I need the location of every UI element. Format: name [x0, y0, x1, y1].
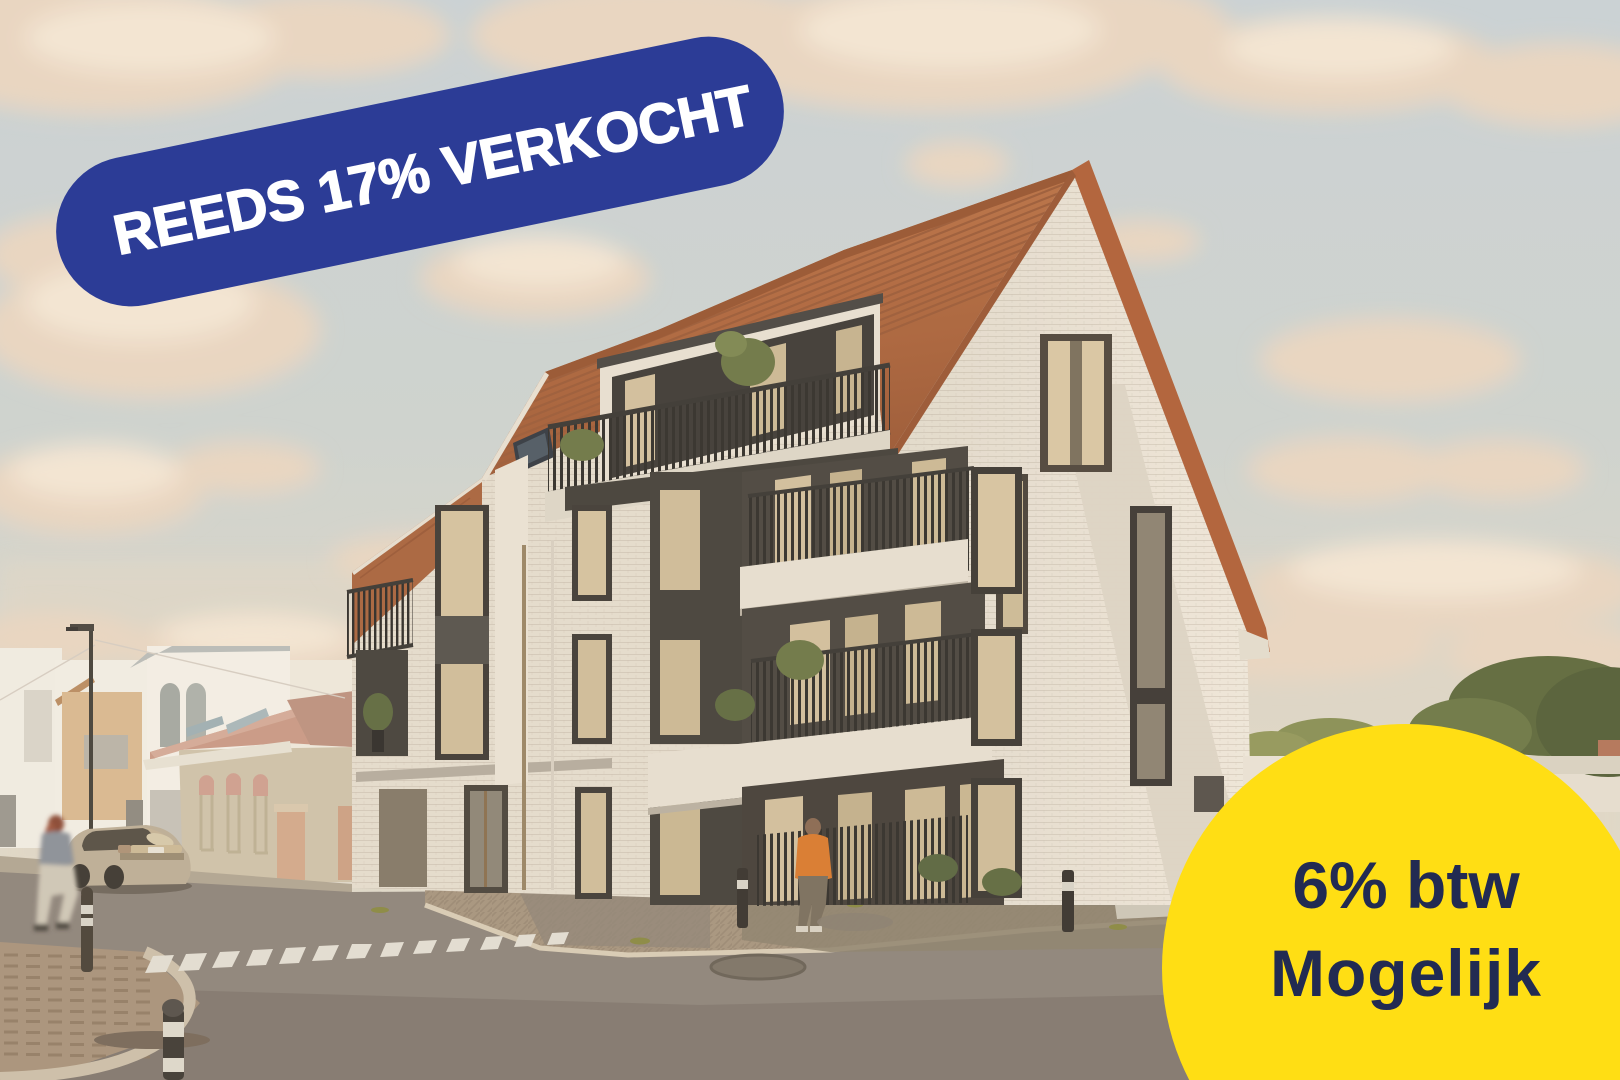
svg-text:6% btw: 6% btw: [1292, 848, 1520, 922]
svg-text:Mogelijk: Mogelijk: [1270, 936, 1542, 1010]
